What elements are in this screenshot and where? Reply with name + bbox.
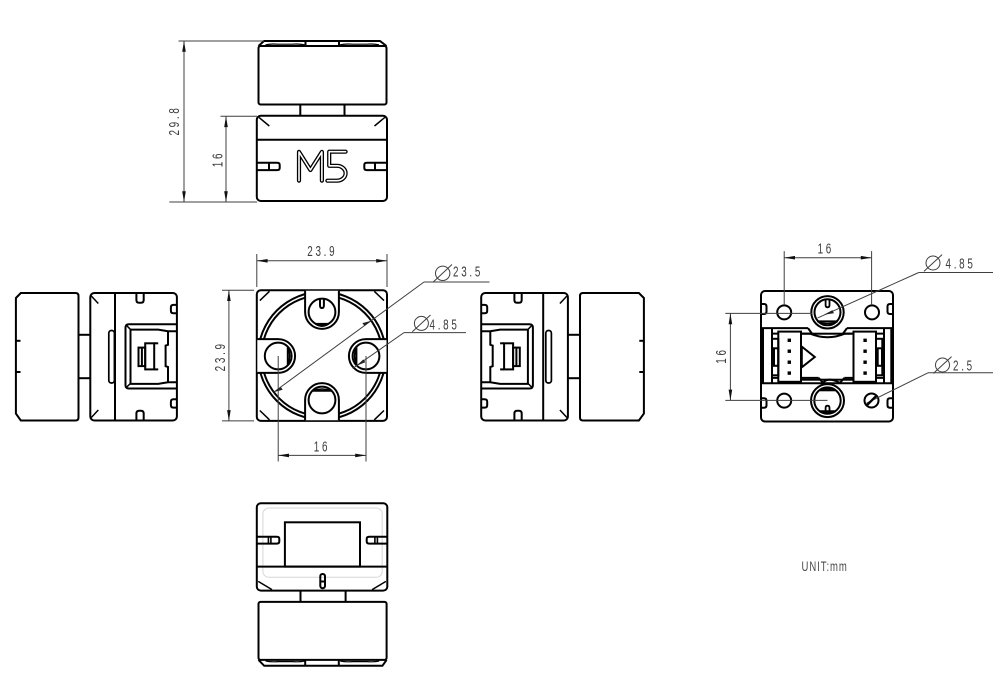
- svg-text:16: 16: [713, 347, 729, 363]
- svg-text:16: 16: [818, 241, 834, 257]
- svg-text:23.9: 23.9: [307, 243, 337, 259]
- svg-text:23.9: 23.9: [212, 341, 228, 371]
- svg-text:2.5: 2.5: [953, 357, 975, 373]
- svg-text:29.8: 29.8: [166, 105, 182, 135]
- svg-text:4.85: 4.85: [430, 317, 460, 333]
- svg-text:23.5: 23.5: [453, 264, 483, 280]
- svg-text:16: 16: [210, 151, 226, 167]
- svg-text:16: 16: [314, 439, 330, 455]
- svg-text:4.85: 4.85: [946, 256, 976, 272]
- svg-text:UNIT:mm: UNIT:mm: [802, 558, 848, 574]
